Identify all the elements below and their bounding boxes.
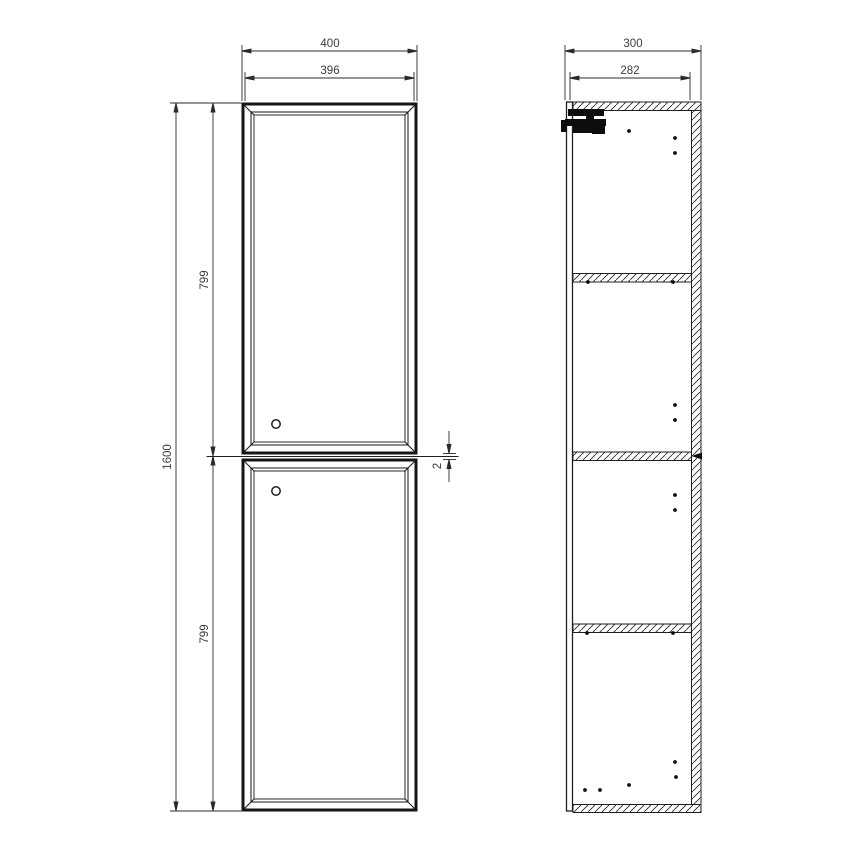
dim-width-door-label: 396 (320, 65, 339, 77)
dim-depth-internal: 282 (570, 65, 690, 100)
shelf-2 (573, 452, 692, 461)
dim-depth-internal-label: 282 (620, 65, 639, 77)
dim-door-gap-label: 2 (432, 463, 444, 469)
shelf-3 (573, 624, 692, 633)
front-dimensions: 400 396 1600 799 (162, 38, 456, 811)
dim-height-overall-label: 1600 (162, 444, 174, 470)
front-view (207, 104, 458, 810)
door-handle-hole-bottom (272, 487, 280, 495)
door-bottom (243, 460, 416, 810)
door-profile (567, 102, 573, 811)
side-view (561, 102, 702, 813)
dim-door-top-height-label: 799 (199, 270, 211, 289)
dim-door-bottom-height: 799 (199, 456, 215, 811)
door-top (243, 104, 416, 453)
drawing-canvas: 400 396 1600 799 (0, 0, 868, 868)
dim-door-top-height: 799 (199, 103, 215, 456)
cabinet-bottom-panel (573, 805, 701, 813)
dim-door-bottom-height-label: 799 (199, 624, 211, 643)
door-handle-hole-top (272, 420, 280, 428)
dim-width-overall-label: 400 (320, 38, 339, 50)
dim-width-door: 396 (245, 65, 414, 101)
dim-depth-overall-label: 300 (623, 38, 642, 50)
side-dimensions: 300 282 (565, 38, 701, 100)
